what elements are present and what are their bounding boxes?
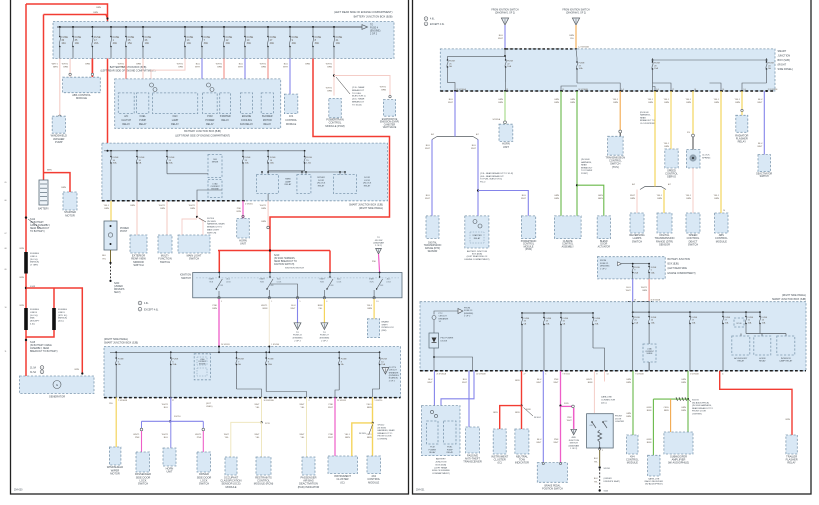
svg-text:1 S/V206: 1 S/V206 xyxy=(271,344,279,346)
svg-text:(IN SIGN: (IN SIGN xyxy=(581,159,590,161)
svg-text:NEAR BREAKOUT: NEAR BREAKOUT xyxy=(30,227,50,230)
svg-text:BLU: BLU xyxy=(196,64,201,66)
svg-text:BRN: BRN xyxy=(190,208,195,210)
svg-text:LT GRN: LT GRN xyxy=(30,265,38,267)
svg-text:(4.6L: NEAR: (4.6L: NEAR xyxy=(352,98,365,101)
svg-text:SATELLITE: SATELLITE xyxy=(648,477,660,480)
svg-text:50A: 50A xyxy=(651,271,655,274)
svg-text:4WD: 4WD xyxy=(571,437,576,439)
svg-text:YEL1: YEL1 xyxy=(686,195,692,197)
svg-text:WHT1: WHT1 xyxy=(261,305,268,307)
svg-text:WHT1: WHT1 xyxy=(260,64,267,66)
svg-text:WHT: WHT xyxy=(498,38,504,40)
svg-text:27: 27 xyxy=(672,89,674,91)
svg-text:27: 27 xyxy=(172,400,174,402)
svg-text:YEL1: YEL1 xyxy=(657,195,663,197)
svg-text:INJECTOR 1): INJECTOR 1) xyxy=(352,96,366,98)
svg-text:CABLE ASSEMBLY,: CABLE ASSEMBLY, xyxy=(30,224,51,227)
svg-text:DOOR: DOOR xyxy=(600,244,607,246)
svg-text:RELAY: RELAY xyxy=(429,451,436,454)
svg-text:EMISSION (EVAP): EMISSION (EVAP) xyxy=(380,121,399,124)
svg-text:FUSE: FUSE xyxy=(270,157,276,159)
svg-text:30A: 30A xyxy=(204,42,209,45)
svg-text:INDICATOR: INDICATOR xyxy=(515,461,529,465)
svg-text:10A: 10A xyxy=(145,42,150,45)
svg-text:POWER: POWER xyxy=(429,449,437,451)
svg-text:BREAKOUT TO: BREAKOUT TO xyxy=(207,226,223,229)
svg-text:15A: 15A xyxy=(268,363,272,366)
svg-text:BLU: BLU xyxy=(164,437,169,439)
svg-text:COOLING: COOLING xyxy=(241,119,252,122)
svg-text:FUSIBLE: FUSIBLE xyxy=(30,309,40,311)
svg-text:9: 9 xyxy=(602,450,603,452)
svg-text:WHT1: WHT1 xyxy=(260,205,267,207)
svg-text:FUSIBLE: FUSIBLE xyxy=(30,253,40,255)
svg-text:WHT1: WHT1 xyxy=(52,64,59,66)
svg-text:(RIGHT SIDE PANEL): (RIGHT SIDE PANEL) xyxy=(782,294,806,297)
svg-text:15A: 15A xyxy=(654,67,658,70)
svg-text:DOOR: DOOR xyxy=(318,180,325,182)
svg-text:15A: 15A xyxy=(692,321,696,324)
svg-text:ASSEMBLY, NEAR: ASSEMBLY, NEAR xyxy=(30,347,50,350)
svg-text:BLU: BLU xyxy=(284,64,289,66)
svg-text:BREAKER: BREAKER xyxy=(439,317,449,320)
svg-text:10A: 10A xyxy=(75,42,80,45)
svg-text:MODULE: MODULE xyxy=(524,246,534,248)
svg-text:(DIAGRAM: (DIAGRAM xyxy=(373,242,384,245)
svg-text:2 OF 2: 2 OF 2 xyxy=(389,380,396,382)
svg-text:8: 8 xyxy=(596,374,597,376)
svg-text:(5.0 SQ.: (5.0 SQ. xyxy=(30,315,39,317)
svg-text:TRANSMISSION: TRANSMISSION xyxy=(424,244,442,247)
svg-text:BRN: BRN xyxy=(136,64,141,66)
svg-text:CIRCUIT: CIRCUIT xyxy=(439,316,448,318)
svg-text:DEACTIVATOR: DEACTIVATOR xyxy=(756,172,772,175)
svg-text:7-6: 7-6 xyxy=(743,89,746,91)
svg-text:PCM: PCM xyxy=(207,115,212,118)
svg-text:BRAKE PEDAL: BRAKE PEDAL xyxy=(545,485,562,488)
svg-text:CANISTER: CANISTER xyxy=(384,123,396,126)
svg-text:DRIVER'S: DRIVER'S xyxy=(114,289,125,291)
svg-text:WHT: WHT xyxy=(255,434,261,436)
svg-text:2 OF 2: 2 OF 2 xyxy=(294,340,301,342)
svg-text:FUSE: FUSE xyxy=(381,359,387,361)
svg-text:SWITCH: SWITCH xyxy=(632,239,642,243)
svg-text:SMART JUNCTION BOX (SJB): SMART JUNCTION BOX (SJB) xyxy=(772,298,806,301)
svg-text:CLOCKSPRING): CLOCKSPRING) xyxy=(640,123,656,125)
svg-text:WHT: WHT xyxy=(283,66,289,68)
svg-text:FUEL: FUEL xyxy=(140,115,147,118)
svg-text:BLU: BLU xyxy=(428,379,433,381)
svg-text:15A: 15A xyxy=(172,363,176,366)
svg-text:NEAR: NEAR xyxy=(640,116,646,119)
svg-text:(STD SQ.: (STD SQ. xyxy=(58,315,68,317)
svg-text:FUSE: FUSE xyxy=(238,359,244,361)
svg-text:EXCEPT 4.6L: EXCEPT 4.6L xyxy=(430,24,445,26)
svg-text:WHT: WHT xyxy=(630,195,636,197)
svg-text:GRN: GRN xyxy=(498,99,503,101)
svg-text:DOOR: DOOR xyxy=(615,418,622,420)
svg-text:SENSE: SENSE xyxy=(647,353,654,355)
svg-text:WHT: WHT xyxy=(427,382,433,384)
svg-text:(9.0 SQ.: (9.0 SQ. xyxy=(30,259,39,261)
svg-text:TO: TO xyxy=(296,332,299,334)
svg-text:BRN: BRN xyxy=(714,198,719,200)
svg-text:10A: 10A xyxy=(748,321,752,324)
svg-text:(ENGINE): (ENGINE) xyxy=(464,313,474,315)
svg-text:(DLC): (DLC) xyxy=(601,402,607,404)
svg-text:RELAY: RELAY xyxy=(221,119,229,122)
svg-text:BRN: BRN xyxy=(119,66,124,68)
svg-text:STARTER: STARTER xyxy=(220,115,231,118)
svg-text:BRN: BRN xyxy=(261,221,266,223)
svg-text:1.5A: 1.5A xyxy=(306,162,311,165)
svg-text:BRN: BRN xyxy=(327,66,332,68)
svg-text:S112: S112 xyxy=(30,219,36,221)
svg-text:S/V205A: S/V205A xyxy=(493,118,501,121)
svg-text:10: 10 xyxy=(5,307,7,309)
svg-text:20A: 20A xyxy=(546,322,550,325)
svg-text:WHT: WHT xyxy=(536,382,542,384)
svg-text:BLU: BLU xyxy=(626,287,631,289)
svg-text:TRANSCEIVER: TRANSCEIVER xyxy=(463,460,482,464)
svg-text:GRN: GRN xyxy=(647,407,652,409)
svg-text:10 S/V300B: 10 S/V300B xyxy=(264,400,275,402)
svg-text:OFF: OFF xyxy=(380,285,383,287)
svg-text:FUSE: FUSE xyxy=(172,359,178,361)
svg-text:BRN: BRN xyxy=(681,410,686,412)
svg-text:1: 1 xyxy=(271,301,272,303)
svg-text:10A: 10A xyxy=(507,65,511,68)
svg-text:BRN: BRN xyxy=(515,412,520,414)
svg-text:40A: 40A xyxy=(292,42,297,45)
svg-text:20A: 20A xyxy=(595,322,599,325)
svg-text:5 S/V300B: 5 S/V300B xyxy=(690,374,699,376)
svg-text:BREAKOUT TO BATTERY): BREAKOUT TO BATTERY) xyxy=(30,350,58,353)
svg-text:MODULE: MODULE xyxy=(76,96,87,100)
svg-text:DRIVER'S SEAT): DRIVER'S SEAT) xyxy=(604,480,620,483)
svg-text:WHT: WHT xyxy=(300,434,306,436)
svg-text:BLU: BLU xyxy=(537,439,542,441)
svg-text:BREAKER: BREAKER xyxy=(389,371,399,374)
svg-text:UNIT: UNIT xyxy=(503,145,509,149)
svg-text:GRN: GRN xyxy=(554,99,559,101)
svg-text:S/V201: S/V201 xyxy=(604,468,611,470)
svg-text:WHT: WHT xyxy=(300,404,306,406)
svg-text:WHT: WHT xyxy=(238,66,244,68)
svg-text:VENT VALVE: VENT VALVE xyxy=(383,126,397,129)
svg-text:(IC): (IC) xyxy=(498,461,502,465)
svg-text:BRN: BRN xyxy=(85,64,90,66)
svg-text:BRN: BRN xyxy=(569,35,574,37)
svg-text:BRN: BRN xyxy=(61,187,66,189)
svg-text:15A: 15A xyxy=(762,321,766,324)
svg-text:(W/ AUDIOPHILE): (W/ AUDIOPHILE) xyxy=(645,483,663,486)
svg-text:SMART JUNCTION BOX (SJB): SMART JUNCTION BOX (SJB) xyxy=(349,203,383,206)
svg-text:(RIGHT: (RIGHT xyxy=(778,64,787,67)
svg-text:BRN: BRN xyxy=(664,146,669,148)
svg-text:JUNCTION: JUNCTION xyxy=(778,55,791,58)
svg-text:7 S/V300B: 7 S/V300B xyxy=(118,400,128,402)
svg-text:WHT1: WHT1 xyxy=(326,64,333,66)
svg-text:WHT1: WHT1 xyxy=(586,379,593,381)
svg-text:LIGHTER): LIGHTER) xyxy=(378,439,388,441)
svg-text:2: 2 xyxy=(309,400,310,402)
svg-text:MAIN LIGHT: MAIN LIGHT xyxy=(207,228,220,231)
svg-text:1 OF 2): 1 OF 2) xyxy=(570,448,577,450)
svg-text:DIGITAL: DIGITAL xyxy=(428,241,437,244)
svg-text:FUSE: FUSE xyxy=(768,63,774,65)
svg-text:(EXCEPT: (EXCEPT xyxy=(30,321,40,323)
svg-text:74 S/V300A: 74 S/V300A xyxy=(456,88,466,91)
svg-text:TO: TO xyxy=(323,332,326,334)
svg-text:MOTOR: MOTOR xyxy=(263,119,272,122)
svg-text:PNK: PNK xyxy=(237,208,242,210)
svg-text:JUNCTION: JUNCTION xyxy=(435,462,446,464)
svg-text:SWITCH): SWITCH) xyxy=(207,232,216,234)
svg-text:RELAY: RELAY xyxy=(139,123,147,126)
svg-text:16 S/V300B: 16 S/V300B xyxy=(578,89,588,91)
svg-text:BRN: BRN xyxy=(657,198,662,200)
svg-text:31.0A: 31.0A xyxy=(30,367,36,370)
svg-text:HARNESS,: HARNESS, xyxy=(640,114,651,117)
svg-text:MOTOR: MOTOR xyxy=(65,213,75,217)
svg-text:STARTER: STARTER xyxy=(472,234,482,237)
svg-text:(DIAGRAM 1 OF 2): (DIAGRAM 1 OF 2) xyxy=(566,12,586,15)
svg-text:15A: 15A xyxy=(128,42,133,45)
svg-text:MODULE (PCM): MODULE (PCM) xyxy=(325,124,344,128)
svg-text:254-031: 254-031 xyxy=(416,490,425,492)
svg-text:S/V204: S/V204 xyxy=(207,218,215,220)
svg-text:08: 08 xyxy=(5,248,7,250)
svg-text:24: 24 xyxy=(694,89,696,91)
svg-text:BLK: BLK xyxy=(594,478,598,480)
svg-text:MODULE: MODULE xyxy=(368,480,379,484)
svg-text:1-5: 1-5 xyxy=(376,301,379,303)
svg-text:BATTERY: BATTERY xyxy=(38,208,49,211)
svg-text:6: 6 xyxy=(326,301,327,303)
svg-text:YEL1: YEL1 xyxy=(735,99,741,101)
svg-text:(IN SIGN HARNESS,: (IN SIGN HARNESS, xyxy=(274,257,296,260)
svg-text:10A: 10A xyxy=(336,42,341,45)
svg-text:RELAY: RELAY xyxy=(206,123,214,126)
svg-text:A/C: A/C xyxy=(124,115,128,118)
svg-text:TO BATTERY): TO BATTERY) xyxy=(30,230,45,233)
svg-text:RELAY: RELAY xyxy=(738,140,747,144)
svg-text:BRN: BRN xyxy=(93,12,98,14)
svg-text:BRN: BRN xyxy=(381,89,386,91)
svg-text:PNK: PNK xyxy=(372,261,377,263)
svg-text:BRN: BRN xyxy=(20,305,25,307)
svg-text:SENSOR: SENSOR xyxy=(428,251,438,253)
svg-text:(W/ AUDIOPHILE): (W/ AUDIOPHILE) xyxy=(668,461,689,465)
svg-text:DATA LINK: DATA LINK xyxy=(601,396,612,399)
svg-text:2 OF 2: 2 OF 2 xyxy=(321,340,328,342)
svg-text:BLU: BLU xyxy=(239,64,244,66)
svg-text:UNIT: UNIT xyxy=(166,470,172,474)
svg-text:WHT: WHT xyxy=(521,198,527,200)
svg-text:HARNESS,: HARNESS, xyxy=(581,161,592,164)
svg-text:TO: TO xyxy=(370,25,373,27)
svg-text:EVAPORATIVE: EVAPORATIVE xyxy=(382,118,398,121)
svg-text:ACCESSORY: ACCESSORY xyxy=(734,357,748,360)
svg-text:YEL1: YEL1 xyxy=(664,143,670,145)
svg-text:PTC: PTC xyxy=(439,313,444,315)
svg-text:4.6L: 4.6L xyxy=(430,19,435,21)
svg-text:(ENGINE): (ENGINE) xyxy=(370,31,381,33)
svg-text:GENERATOR: GENERATOR xyxy=(49,394,65,398)
svg-text:BRN: BRN xyxy=(642,290,647,292)
svg-text:(4.6L): (4.6L) xyxy=(58,321,64,323)
svg-text:7 S/V300B: 7 S/V300B xyxy=(635,374,644,376)
svg-text:FRONT: FRONT xyxy=(615,416,623,418)
svg-text:WHT: WHT xyxy=(554,382,560,384)
svg-text:30A: 30A xyxy=(113,162,117,165)
svg-text:TO FUEL INJECTOR 5): TO FUEL INJECTOR 5) xyxy=(480,179,502,181)
svg-text:FROM: FROM xyxy=(464,308,470,310)
svg-text:BLU: BLU xyxy=(426,195,431,197)
svg-text:BLU: BLU xyxy=(472,145,477,147)
svg-text:SENSOR: SENSOR xyxy=(659,243,670,247)
svg-text:(W/ AUDIOPHILE): (W/ AUDIOPHILE) xyxy=(692,401,709,404)
svg-text:FUSE: FUSE xyxy=(341,359,347,361)
svg-text:BRN: BRN xyxy=(130,205,135,207)
svg-text:MODULE: MODULE xyxy=(716,239,727,243)
svg-text:BRN: BRN xyxy=(647,442,652,444)
svg-text:BRN: BRN xyxy=(630,198,635,200)
svg-text:YEL1: YEL1 xyxy=(686,99,692,101)
svg-text:10 S/V300B: 10 S/V300B xyxy=(476,374,486,376)
svg-text:YEL1: YEL1 xyxy=(648,99,654,101)
svg-text:ENGINE COMPARTMENT): ENGINE COMPARTMENT) xyxy=(668,272,696,275)
svg-text:07: 07 xyxy=(5,233,7,235)
svg-text:9 S/V205: 9 S/V205 xyxy=(563,374,570,376)
svg-text:BREAKOUT: BREAKOUT xyxy=(352,101,365,104)
svg-text:A/2: A/2 xyxy=(431,133,434,136)
svg-text:WHT1: WHT1 xyxy=(62,64,69,66)
svg-text:11: 11 xyxy=(5,351,7,353)
svg-text:BRN: BRN xyxy=(588,382,593,384)
svg-text:WHT: WHT xyxy=(448,102,454,104)
svg-text:4 S/V205: 4 S/V205 xyxy=(245,204,253,206)
svg-text:31.5A: 31.5A xyxy=(30,371,36,374)
svg-text:RADIO RECEIVER: RADIO RECEIVER xyxy=(645,480,664,483)
svg-text:S210: S210 xyxy=(274,255,280,257)
svg-text:20A: 20A xyxy=(169,162,173,165)
svg-text:FROM IGNITION SWITCH: FROM IGNITION SWITCH xyxy=(491,10,519,12)
svg-text:CONTROL: CONTROL xyxy=(523,244,535,246)
svg-text:BATTERY JUNCTION BOX (BJB): BATTERY JUNCTION BOX (BJB) xyxy=(184,130,221,133)
svg-text:PNK: PNK xyxy=(554,379,559,381)
svg-text:S/V212: S/V212 xyxy=(378,425,386,427)
svg-text:4.6L: 4.6L xyxy=(144,303,149,305)
svg-text:UNIT: UNIT xyxy=(240,242,246,246)
svg-text:(IN SIGN HARNESS,: (IN SIGN HARNESS, xyxy=(692,404,712,407)
svg-text:POWER: POWER xyxy=(120,228,129,230)
svg-text:BRN: BRN xyxy=(664,410,669,412)
svg-text:LAMP: LAMP xyxy=(172,119,179,122)
svg-text:FUSE: FUSE xyxy=(169,157,175,159)
svg-text:BLU: BLU xyxy=(758,143,763,145)
svg-text:SIDE PANEL): SIDE PANEL) xyxy=(778,68,794,71)
svg-text:BRN: BRN xyxy=(686,198,691,200)
svg-text:BOX (SJB): BOX (SJB) xyxy=(778,59,790,62)
svg-text:BRN: BRN xyxy=(598,198,603,200)
svg-text:BATTERY JUNCTION: BATTERY JUNCTION xyxy=(467,250,488,253)
svg-text:(DIAGRAM: (DIAGRAM xyxy=(568,444,579,447)
svg-text:(IN SIGN: (IN SIGN xyxy=(378,427,387,429)
svg-text:RANGE (DTR): RANGE (DTR) xyxy=(425,247,440,250)
svg-text:RELAY: RELAY xyxy=(318,184,325,187)
svg-text:GRN: GRN xyxy=(626,379,631,381)
svg-text:RELAY: RELAY xyxy=(759,360,766,363)
svg-text:WHT1: WHT1 xyxy=(118,64,125,66)
svg-text:MODULE: MODULE xyxy=(627,461,638,465)
svg-text:BRN: BRN xyxy=(498,102,503,104)
svg-text:20 S/V205: 20 S/V205 xyxy=(221,344,230,346)
svg-text:WHT: WHT xyxy=(425,198,431,200)
svg-text:USED): USED) xyxy=(206,406,213,408)
svg-text:BRN: BRN xyxy=(104,208,109,210)
svg-text:POINT: POINT xyxy=(120,231,128,233)
svg-text:WHT1: WHT1 xyxy=(326,88,333,90)
svg-text:RC-30: RC-30 xyxy=(737,323,742,325)
svg-text:LOCK/: LOCK/ xyxy=(364,180,370,182)
svg-text:BRN: BRN xyxy=(75,369,80,371)
svg-text:FUSE: FUSE xyxy=(507,61,513,63)
svg-text:WHT: WHT xyxy=(536,442,542,444)
svg-text:10A: 10A xyxy=(270,162,274,165)
svg-text:SWITCH: SWITCH xyxy=(760,176,769,178)
svg-text:S/V272: S/V272 xyxy=(692,400,700,402)
svg-text:START: START xyxy=(319,278,324,281)
svg-text:BRN: BRN xyxy=(648,102,653,104)
svg-text:START: START xyxy=(259,278,264,281)
svg-text:YEL1: YEL1 xyxy=(613,99,619,101)
svg-text:10A: 10A xyxy=(61,42,66,45)
svg-text:CLUTCH: CLUTCH xyxy=(121,119,131,122)
svg-text:SENSE: SENSE xyxy=(212,162,219,164)
svg-text:15A: 15A xyxy=(634,321,638,324)
svg-text:BRN: BRN xyxy=(714,102,719,104)
svg-text:BRN: BRN xyxy=(261,208,266,210)
svg-text:PNK: PNK xyxy=(135,437,140,439)
svg-text:FUSE 4: FUSE 4 xyxy=(370,28,379,30)
svg-text:START: START xyxy=(209,278,214,281)
svg-text:OFF: OFF xyxy=(270,285,273,287)
svg-text:BRN: BRN xyxy=(681,382,686,384)
svg-text:POWERTRAIN: POWERTRAIN xyxy=(521,240,537,243)
svg-text:26 S/V300A: 26 S/V300A xyxy=(436,373,446,376)
svg-text:(LEFT REAR SIDE OF ENGINE COMP: (LEFT REAR SIDE OF ENGINE COMPARTMENT) xyxy=(334,10,393,14)
svg-text:27: 27 xyxy=(524,374,526,376)
svg-text:(ENGINE): (ENGINE) xyxy=(600,266,610,268)
svg-text:YEL1: YEL1 xyxy=(714,99,720,101)
svg-text:TO POWER: TO POWER xyxy=(581,170,593,172)
svg-text:WHT: WHT xyxy=(328,437,334,439)
svg-text:FRONT DOOR: FRONT DOOR xyxy=(692,411,706,413)
svg-text:BATTERY JUNCTION BOX (BJB): BATTERY JUNCTION BOX (BJB) xyxy=(354,15,393,19)
svg-text:BRN: BRN xyxy=(345,437,350,439)
svg-text:15A: 15A xyxy=(725,321,729,324)
svg-text:20: 20 xyxy=(722,89,724,91)
svg-text:254-030: 254-030 xyxy=(14,490,23,492)
svg-text:SWITCH: SWITCH xyxy=(189,257,199,261)
svg-text:10A: 10A xyxy=(245,162,249,165)
svg-text:WHT: WHT xyxy=(567,420,573,422)
svg-text:40A: 40A xyxy=(270,42,275,45)
svg-text:NEAR BREAKOUT TO: NEAR BREAKOUT TO xyxy=(692,407,714,410)
